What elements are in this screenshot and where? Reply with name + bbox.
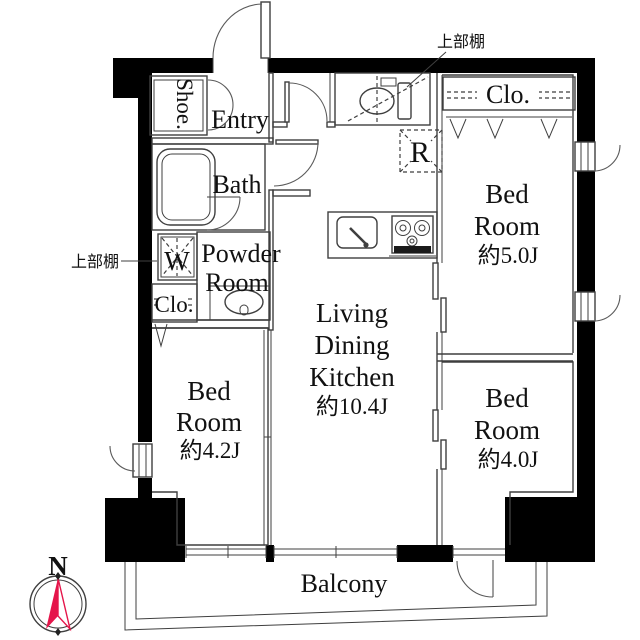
floor-plan-drawing: 上部棚 上部棚 Shoe. Entry Bath Powder Room W C… (0, 0, 640, 640)
toilet-room (330, 73, 430, 125)
window-right-lower (575, 292, 620, 321)
entry-door (213, 2, 270, 73)
bedroom-ne-label-1: Bed (485, 179, 529, 209)
entry-label: Entry (211, 105, 269, 134)
compass-north-icon (30, 572, 86, 636)
ldk-door (269, 140, 318, 330)
window-bottom-sw (186, 546, 266, 558)
upper-shelf-label-top: 上部棚 (437, 33, 485, 51)
ldk-label-2: Dining (314, 330, 389, 360)
hanger-icon (541, 119, 557, 138)
window-right-upper (575, 142, 620, 171)
ldk-east-wall (433, 73, 446, 545)
balcony-door (453, 546, 505, 597)
kitchen-counter (328, 212, 437, 258)
fridge-label: R (410, 136, 430, 169)
bedroom-se-area: 約4.0J (478, 447, 539, 472)
hallway-door (273, 82, 335, 127)
bath-label: Bath (212, 170, 261, 199)
window-bottom-ldk (274, 546, 397, 558)
washer-label: W (164, 246, 190, 276)
powder-room-label-1: Powder (201, 239, 281, 268)
bedroom-sw-area: 約4.2J (180, 438, 241, 463)
bedroom-se-label-1: Bed (485, 383, 529, 413)
bathtub-icon (157, 149, 215, 225)
compass-north-label: N (48, 551, 68, 581)
closet-left-label: Clo. (155, 292, 194, 317)
stove-icon (389, 216, 436, 256)
ldk-area: 約10.4J (316, 394, 388, 419)
balcony-label: Balcony (301, 569, 388, 598)
window-left (110, 444, 152, 477)
bedroom-divider-wall (437, 354, 573, 361)
shoe-label: Shoe. (172, 78, 197, 130)
floor-plan: 上部棚 上部棚 Shoe. Entry Bath Powder Room W C… (0, 0, 640, 640)
powder-room-label-2: Room (205, 268, 269, 297)
bedroom-se-label-2: Room (474, 415, 540, 445)
bedroom-ne-label-2: Room (474, 211, 540, 241)
bedroom-sw-label-2: Room (176, 407, 242, 437)
toilet-icon (360, 78, 411, 119)
bedroom-sw-label-1: Bed (187, 376, 231, 406)
closet-right-label: Clo. (486, 80, 530, 109)
sink-icon (337, 217, 377, 248)
ldk-label-1: Living (316, 298, 388, 328)
upper-shelf-label-left: 上部棚 (71, 253, 119, 271)
bedroom-ne-area: 約5.0J (478, 243, 539, 268)
hanger-icon (450, 119, 466, 138)
ldk-label-3: Kitchen (309, 362, 395, 392)
sanitary-bedroom-wall (152, 320, 270, 328)
hanger-icon (487, 119, 503, 138)
